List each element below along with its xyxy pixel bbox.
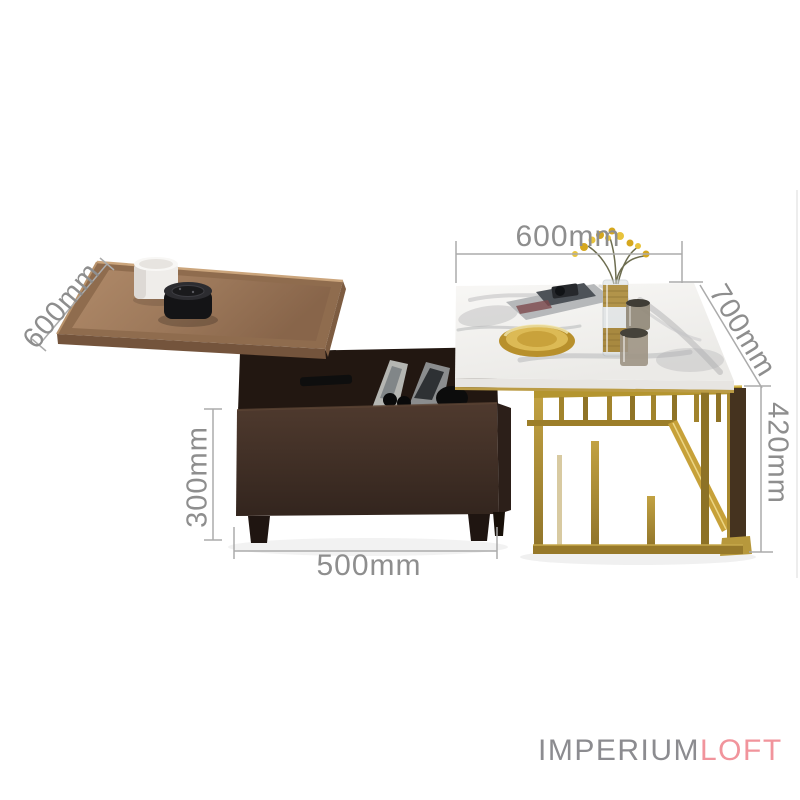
- gold-metal-base: [527, 386, 752, 556]
- dim-right-table-height: 420mm: [763, 402, 792, 504]
- storage-box-side: [497, 403, 511, 514]
- brand-watermark-primary: IMPERIUM: [538, 734, 700, 767]
- lift-top-table-illustration: [57, 257, 511, 543]
- brand-watermark: IMPERIUMLOFT: [538, 736, 783, 766]
- gold-tray: [499, 325, 575, 357]
- storage-box-front: [236, 403, 499, 516]
- black-speaker: [158, 282, 218, 327]
- dim-left-table-height: 300mm: [184, 426, 213, 528]
- brand-watermark-secondary: LOFT: [700, 734, 783, 767]
- photo-edge-seam: [796, 190, 798, 578]
- product-image-canvas: 600mm 600mm 700mm 420mm 300mm 500mm IMPE…: [0, 0, 800, 800]
- furniture-scene-illustration: [0, 0, 800, 800]
- dim-right-table-width: 600mm: [515, 222, 620, 252]
- dim-left-table-width: 500mm: [316, 551, 421, 581]
